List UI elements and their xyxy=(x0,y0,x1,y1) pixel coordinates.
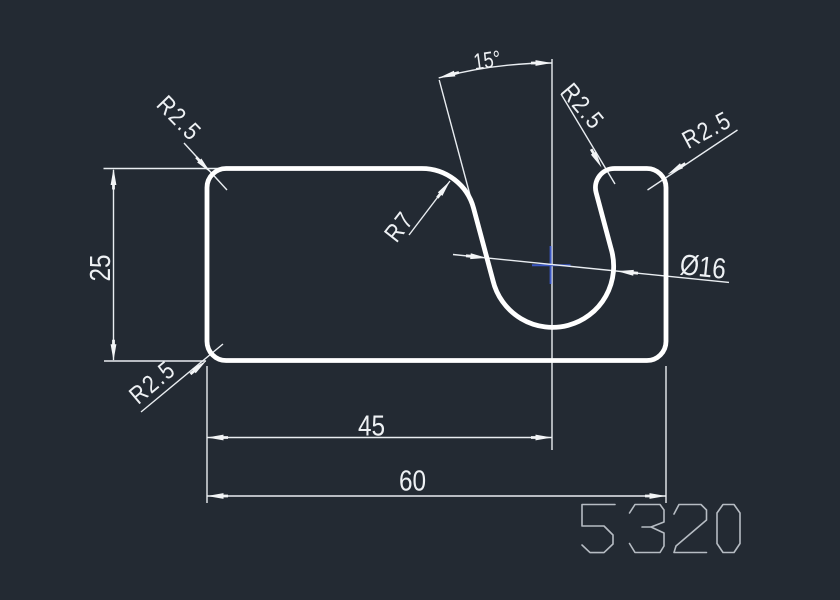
svg-text:Ø16: Ø16 xyxy=(678,248,727,285)
svg-text:45: 45 xyxy=(358,410,385,442)
svg-text:25: 25 xyxy=(84,254,116,281)
svg-text:15°: 15° xyxy=(472,46,502,75)
svg-text:60: 60 xyxy=(399,465,426,497)
